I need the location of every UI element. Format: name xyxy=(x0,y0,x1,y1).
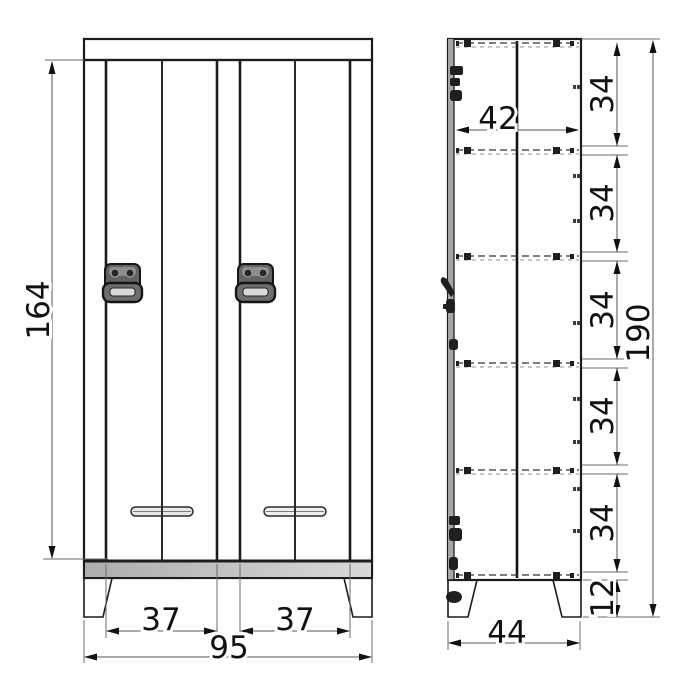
technical-drawing-page: 164 37 37 95 xyxy=(0,0,700,700)
dim-label-shelf-spacing-1: 34 xyxy=(585,74,621,113)
dim-overall-width: 95 xyxy=(84,620,372,666)
dim-label-shelf-spacing-2: 34 xyxy=(585,183,621,222)
dim-shelf-spacing-1: 34 xyxy=(585,43,621,146)
dim-shelf-spacing-4: 34 xyxy=(585,368,621,465)
dim-label-leg-height: 12 xyxy=(585,578,621,617)
front-leg-right xyxy=(344,578,372,617)
dim-label-shelf-spacing-4: 34 xyxy=(585,396,621,435)
dim-label-shelf-spacing-5: 34 xyxy=(585,503,621,542)
technical-drawing: 164 37 37 95 xyxy=(0,0,700,700)
dim-label-shelf-spacing-3: 34 xyxy=(585,290,621,329)
dim-shelf-spacing-2: 34 xyxy=(585,155,621,252)
dim-overall-height: 190 xyxy=(621,40,657,617)
front-legs xyxy=(84,578,372,617)
locker-handle-left-icon xyxy=(103,264,142,302)
side-back-screw-dots xyxy=(573,85,580,533)
dim-label-left-door-width: 37 xyxy=(141,602,180,638)
locker-handle-right-icon xyxy=(236,264,275,302)
dim-leg-height: 12 xyxy=(585,578,621,617)
dim-label-overall-height: 190 xyxy=(621,303,657,362)
dim-label-door-height: 164 xyxy=(21,280,57,339)
side-legs xyxy=(448,580,581,617)
dim-label-overall-width: 95 xyxy=(209,630,248,666)
dim-door-height: 164 xyxy=(21,60,108,559)
dim-label-overall-depth: 44 xyxy=(487,615,526,651)
front-leg-left xyxy=(84,578,112,617)
dim-label-right-door-width: 37 xyxy=(275,602,314,638)
front-door-lines xyxy=(106,60,350,561)
dim-inner-depth: 42 xyxy=(456,101,579,137)
dim-label-inner-depth: 42 xyxy=(478,101,517,137)
side-view: 42 34 34 xyxy=(441,39,660,651)
front-top-board xyxy=(84,39,372,60)
front-view: 164 37 37 95 xyxy=(21,39,372,666)
front-bottom-rail xyxy=(85,562,371,578)
front-cabinet-body xyxy=(84,60,372,578)
side-hinge-middle-icon xyxy=(449,339,458,350)
dim-shelf-spacing-3: 34 xyxy=(585,261,621,359)
dim-overall-depth: 44 xyxy=(448,615,580,651)
side-leg-back xyxy=(553,580,581,617)
dim-shelf-spacing-5: 34 xyxy=(585,474,621,572)
side-hinge-top-icon xyxy=(450,66,463,101)
